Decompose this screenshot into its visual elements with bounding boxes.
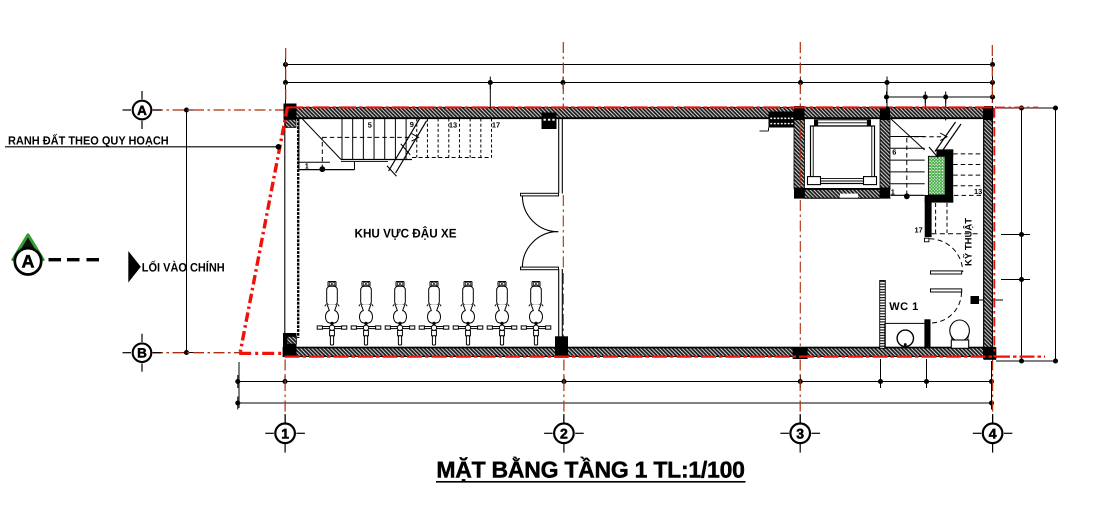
svg-text:A: A <box>137 103 147 118</box>
svg-text:MẶT BẰNG TẦNG 1 TL:1/100: MẶT BẰNG TẦNG 1 TL:1/100 <box>436 457 744 483</box>
svg-text:2: 2 <box>560 425 568 441</box>
svg-text:A: A <box>22 252 35 272</box>
svg-text:LỐI VÀO CHÍNH: LỐI VÀO CHÍNH <box>142 260 225 274</box>
svg-text:6: 6 <box>892 147 896 156</box>
svg-text:3: 3 <box>796 425 804 441</box>
svg-text:RANH ĐẤT THEO QUY HOẠCH: RANH ĐẤT THEO QUY HOẠCH <box>8 133 169 147</box>
svg-text:17: 17 <box>915 225 923 234</box>
svg-text:4: 4 <box>989 425 997 441</box>
svg-text:1: 1 <box>305 162 309 171</box>
svg-text:B: B <box>137 346 147 361</box>
svg-text:WC 1: WC 1 <box>889 301 919 313</box>
svg-text:KHU VỰC ĐẬU XE: KHU VỰC ĐẬU XE <box>355 226 457 241</box>
svg-text:1: 1 <box>891 187 895 196</box>
svg-text:KỸ THUẬT: KỸ THUẬT <box>963 218 975 266</box>
svg-text:13: 13 <box>974 187 982 196</box>
svg-text:13: 13 <box>449 120 457 129</box>
svg-text:1: 1 <box>281 425 289 441</box>
svg-text:9: 9 <box>410 120 414 129</box>
svg-text:17: 17 <box>492 120 500 129</box>
svg-text:5: 5 <box>368 120 372 129</box>
